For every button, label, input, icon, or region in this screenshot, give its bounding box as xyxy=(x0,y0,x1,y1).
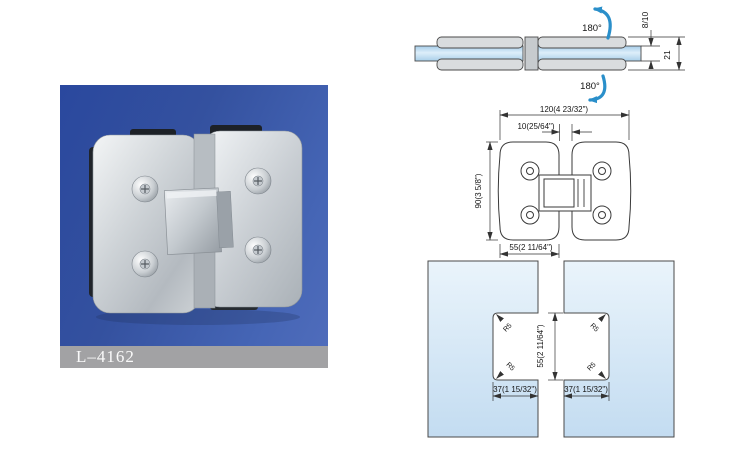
hinge-center-block xyxy=(164,187,233,254)
product-photo-background xyxy=(60,85,328,346)
plate-width-label: 55(2 11/64") xyxy=(509,243,553,252)
cutout-height-label: 55(2 11/64") xyxy=(536,324,545,368)
product-code: L–4162 xyxy=(60,346,135,368)
product-code-strip: L–4162 xyxy=(60,346,328,368)
glass-cutout-drawing: 55(2 11/64") 37(1 15/32") 37(1 15/32") R… xyxy=(420,256,685,441)
right-cutout-width-label: 37(1 15/32") xyxy=(564,385,608,394)
screw xyxy=(132,176,158,202)
radius-label-bottom-right: R5 xyxy=(586,361,597,372)
page: { "product_card": { "label": "L–4162" },… xyxy=(0,0,730,450)
plan-view-drawing: 120(4 23/32") 10(25/64") 90(3 5/8") 55(2… xyxy=(455,98,700,263)
rotation-label-bottom: 180° xyxy=(580,81,600,92)
glass-panels-cutout xyxy=(428,261,674,437)
overall-width-label: 120(4 23/32") xyxy=(540,105,589,114)
radius-label-top-left: R5 xyxy=(502,322,513,333)
rotation-label-top: 180° xyxy=(582,23,602,34)
left-cutout-width-label: 37(1 15/32") xyxy=(493,385,537,394)
glass-thickness-label: 8/10 xyxy=(640,11,650,28)
screw xyxy=(245,168,271,194)
center-block-plan xyxy=(539,175,591,211)
screw xyxy=(245,237,271,263)
glass-panel-right xyxy=(564,261,674,437)
radius-label-bottom-left: R5 xyxy=(504,361,515,372)
overall-thickness-label: 21 xyxy=(662,50,672,60)
product-photo-card: L–4162 xyxy=(60,85,328,368)
glass-panel-left xyxy=(428,261,538,437)
glass-gap-label: 10(25/64") xyxy=(517,122,554,131)
radius-label-top-right: R5 xyxy=(588,322,599,333)
hinge-product-image xyxy=(60,85,328,346)
overall-height-label: 90(3 5/8") xyxy=(474,173,483,208)
screw xyxy=(132,251,158,277)
